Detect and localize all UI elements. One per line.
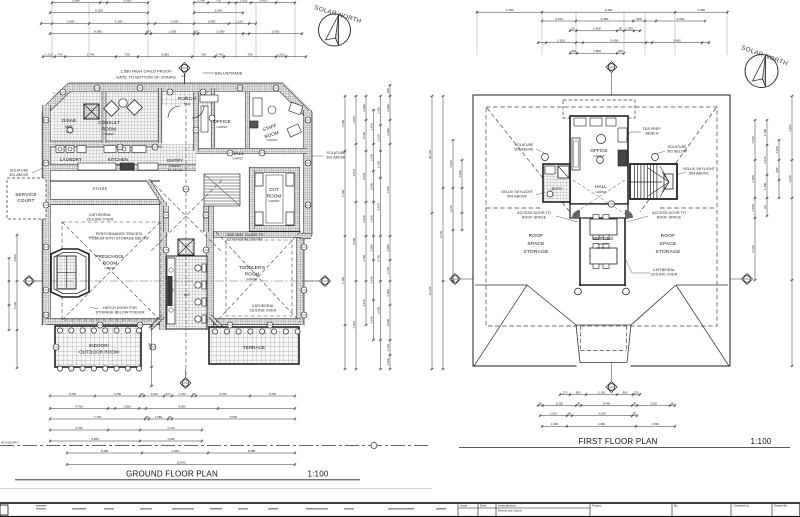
svg-text:3,440: 3,440 xyxy=(449,205,453,213)
svg-text:STORAGE: STORAGE xyxy=(655,249,680,255)
svg-text:3,750: 3,750 xyxy=(362,254,366,262)
svg-text:6,290: 6,290 xyxy=(95,9,103,13)
svg-text:2,100: 2,100 xyxy=(557,39,565,43)
svg-text:3,395: 3,395 xyxy=(788,124,792,132)
svg-text:BATH: BATH xyxy=(552,187,563,191)
svg-text:5,900: 5,900 xyxy=(178,404,186,408)
svg-text:3,198: 3,198 xyxy=(148,342,152,350)
svg-text:2,000: 2,000 xyxy=(370,244,374,252)
svg-text:1,890: 1,890 xyxy=(123,404,131,408)
svg-text:Checked at: Checked at xyxy=(734,504,749,508)
svg-text:TILE: TILE xyxy=(115,163,121,167)
svg-text:ONE WAY GLASS TO: ONE WAY GLASS TO xyxy=(227,233,264,237)
svg-text:ROOF SPACE: ROOF SPACE xyxy=(657,216,682,220)
svg-text:GATE TO BOTTOM OF STAIRS: GATE TO BOTTOM OF STAIRS xyxy=(116,75,176,80)
svg-text:2,400: 2,400 xyxy=(593,27,601,31)
svg-text:5,430: 5,430 xyxy=(611,39,619,43)
svg-text:MEETING: MEETING xyxy=(592,236,614,241)
svg-text:2,920: 2,920 xyxy=(386,318,390,326)
svg-text:900: 900 xyxy=(623,390,628,394)
svg-text:2,100: 2,100 xyxy=(598,390,606,394)
svg-text:457: 457 xyxy=(146,30,151,34)
svg-text:1:100: 1:100 xyxy=(307,470,328,479)
svg-text:750: 750 xyxy=(124,53,129,57)
svg-text:VELUX SKYLIGHT: VELUX SKYLIGHT xyxy=(501,190,534,194)
svg-text:STORE: STORE xyxy=(92,186,107,191)
svg-text:WC: WC xyxy=(184,293,190,297)
svg-text:1,180: 1,180 xyxy=(386,358,390,366)
svg-text:5,310: 5,310 xyxy=(751,245,755,253)
svg-text:3,960: 3,960 xyxy=(13,254,17,262)
svg-text:1,660: 1,660 xyxy=(155,415,163,419)
svg-text:2,840: 2,840 xyxy=(370,215,374,223)
svg-text:2,000: 2,000 xyxy=(386,128,390,136)
svg-text:504 ABOVE: 504 ABOVE xyxy=(507,195,528,199)
svg-text:BENCH: BENCH xyxy=(645,132,658,136)
svg-text:7,120: 7,120 xyxy=(341,189,345,197)
svg-text:3,530: 3,530 xyxy=(751,136,755,144)
svg-text:PRESCHOOL: PRESCHOOL xyxy=(95,254,125,259)
svg-text:900: 900 xyxy=(775,167,779,172)
svg-text:SOLATUBE: SOLATUBE xyxy=(10,169,29,173)
svg-text:2,000: 2,000 xyxy=(386,289,390,297)
svg-text:900: 900 xyxy=(386,88,390,93)
svg-text:CEILING OVER: CEILING OVER xyxy=(651,273,678,277)
svg-text:3,510: 3,510 xyxy=(650,401,658,405)
svg-text:SPACE: SPACE xyxy=(527,241,544,247)
svg-text:1,480: 1,480 xyxy=(751,204,755,212)
svg-text:By: By xyxy=(674,504,678,508)
svg-text:CARPET: CARPET xyxy=(232,157,244,161)
svg-text:3,750: 3,750 xyxy=(219,392,227,396)
svg-text:3,360: 3,360 xyxy=(449,160,453,168)
svg-text:CARPET: CARPET xyxy=(103,132,115,136)
svg-text:DISAB: DISAB xyxy=(62,118,76,123)
svg-text:ROOF: ROOF xyxy=(661,233,676,239)
svg-text:4,870: 4,870 xyxy=(362,172,366,180)
svg-text:501 ABOVE: 501 ABOVE xyxy=(515,148,535,152)
svg-text:4,140: 4,140 xyxy=(13,301,17,309)
svg-text:BALUSTRADE: BALUSTRADE xyxy=(215,71,243,76)
svg-text:7,450: 7,450 xyxy=(341,276,345,284)
svg-text:3,670: 3,670 xyxy=(362,299,366,307)
svg-text:2,800: 2,800 xyxy=(67,19,75,23)
svg-text:Revised plan layouts: Revised plan layouts xyxy=(498,509,523,513)
svg-text:4,180: 4,180 xyxy=(167,437,175,441)
svg-text:3,750: 3,750 xyxy=(269,392,277,396)
svg-text:RL 4,57.40: RL 4,57.40 xyxy=(168,168,182,172)
svg-text:2,840: 2,840 xyxy=(370,123,374,131)
svg-text:4,870: 4,870 xyxy=(377,203,381,211)
svg-text:CARPET: CARPET xyxy=(266,138,278,142)
svg-text:90: 90 xyxy=(633,412,637,416)
svg-text:1,510: 1,510 xyxy=(550,412,558,416)
svg-text:4,300: 4,300 xyxy=(115,19,123,23)
svg-text:CEILING OVER: CEILING OVER xyxy=(250,309,277,313)
svg-text:Project: Project xyxy=(592,504,602,508)
svg-text:3,750: 3,750 xyxy=(114,392,122,396)
svg-text:INDOOR/: INDOOR/ xyxy=(89,343,110,348)
svg-text:TERRACE: TERRACE xyxy=(243,345,265,350)
svg-text:90: 90 xyxy=(633,401,637,405)
svg-text:502 BELOW: 502 BELOW xyxy=(667,150,687,154)
svg-text:CARPET: CARPET xyxy=(216,125,228,129)
svg-text:504 ABOVE: 504 ABOVE xyxy=(689,172,710,176)
svg-text:STORAGE: STORAGE xyxy=(523,249,548,255)
svg-text:1,400: 1,400 xyxy=(775,146,779,154)
svg-text:COURT: COURT xyxy=(17,198,34,203)
svg-text:5,480: 5,480 xyxy=(248,449,256,453)
svg-text:CATHEDRAL: CATHEDRAL xyxy=(653,268,675,272)
svg-text:4,150: 4,150 xyxy=(506,8,514,12)
svg-text:1,480: 1,480 xyxy=(763,182,767,190)
svg-text:2,000: 2,000 xyxy=(386,104,390,112)
svg-text:6,600: 6,600 xyxy=(352,237,356,245)
svg-text:270: 270 xyxy=(563,390,568,394)
svg-text:TILE: TILE xyxy=(184,102,190,106)
svg-text:TEA PREP.: TEA PREP. xyxy=(642,127,661,131)
svg-text:ROOM: ROOM xyxy=(267,194,282,199)
svg-text:4,020: 4,020 xyxy=(352,116,356,124)
svg-text:2,000: 2,000 xyxy=(362,104,366,112)
svg-text:3,420: 3,420 xyxy=(260,0,268,3)
svg-text:710: 710 xyxy=(216,0,221,3)
svg-text:CATHEDRAL: CATHEDRAL xyxy=(89,213,111,217)
svg-text:4,180: 4,180 xyxy=(598,412,606,416)
svg-text:900: 900 xyxy=(576,390,581,394)
svg-text:1,380: 1,380 xyxy=(458,170,462,178)
svg-text:ACCESS DOOR TO: ACCESS DOOR TO xyxy=(517,211,551,215)
svg-text:3,340: 3,340 xyxy=(370,316,374,324)
svg-text:4,900: 4,900 xyxy=(377,306,381,314)
svg-text:4,790: 4,790 xyxy=(75,426,83,430)
svg-text:90: 90 xyxy=(619,27,623,31)
svg-text:ROOM: ROOM xyxy=(102,127,117,132)
svg-text:3,750: 3,750 xyxy=(377,254,381,262)
svg-text:4,590: 4,590 xyxy=(341,119,345,127)
svg-text:WC: WC xyxy=(65,125,73,130)
svg-text:SPACE: SPACE xyxy=(659,241,676,247)
svg-text:90: 90 xyxy=(763,205,767,209)
svg-text:5,080: 5,080 xyxy=(161,53,169,57)
svg-text:750: 750 xyxy=(247,53,252,57)
svg-text:2,590: 2,590 xyxy=(370,182,374,190)
svg-text:3,000: 3,000 xyxy=(215,9,223,13)
svg-text:5,440: 5,440 xyxy=(603,401,611,405)
svg-text:ENTRY: ENTRY xyxy=(167,158,183,163)
svg-text:2,160: 2,160 xyxy=(377,134,381,142)
svg-text:ROOF: ROOF xyxy=(529,233,544,239)
svg-text:KITCHEN: KITCHEN xyxy=(108,157,129,162)
svg-text:1,743: 1,743 xyxy=(178,392,186,396)
svg-text:13,170: 13,170 xyxy=(428,286,432,295)
svg-text:FIRST FLOOR PLAN: FIRST FLOOR PLAN xyxy=(578,437,657,446)
svg-text:ROOF SPACE: ROOF SPACE xyxy=(522,216,547,220)
svg-text:SERVICE: SERVICE xyxy=(15,192,36,197)
svg-text:2,465: 2,465 xyxy=(763,156,767,164)
svg-text:90: 90 xyxy=(168,415,172,419)
svg-text:Drawn By: Drawn By xyxy=(774,504,788,508)
svg-text:502 ABOVE: 502 ABOVE xyxy=(327,156,347,160)
svg-text:490: 490 xyxy=(571,49,576,53)
svg-text:490: 490 xyxy=(636,17,641,21)
svg-text:1,685: 1,685 xyxy=(169,30,177,34)
svg-text:2,700: 2,700 xyxy=(167,426,175,430)
svg-text:CARPET: CARPET xyxy=(104,266,116,270)
svg-text:5,480: 5,480 xyxy=(101,449,109,453)
svg-text:90: 90 xyxy=(577,401,581,405)
svg-text:8,460: 8,460 xyxy=(605,8,613,12)
svg-text:COT ROOM DOORS: COT ROOM DOORS xyxy=(227,238,263,242)
svg-text:CONSULT: CONSULT xyxy=(98,120,120,125)
svg-text:VELUX SKYLIGHT: VELUX SKYLIGHT xyxy=(683,167,716,171)
svg-text:2,420: 2,420 xyxy=(377,106,381,114)
svg-text:CARPET: CARPET xyxy=(268,199,280,203)
svg-text:Amendments: Amendments xyxy=(498,504,516,508)
svg-text:90: 90 xyxy=(568,412,572,416)
svg-text:CATHEDRAL: CATHEDRAL xyxy=(252,304,274,308)
svg-text:HALL: HALL xyxy=(232,151,245,156)
svg-text:RL 457.40: RL 457.40 xyxy=(597,246,610,250)
svg-text:2,000: 2,000 xyxy=(386,244,390,252)
svg-text:490: 490 xyxy=(618,49,623,53)
svg-text:ROOM: ROOM xyxy=(103,261,118,266)
svg-text:PERFORMANCE SPACES/: PERFORMANCE SPACES/ xyxy=(96,232,142,236)
svg-text:1,260: 1,260 xyxy=(386,343,390,351)
svg-text:457: 457 xyxy=(193,30,198,34)
svg-text:90: 90 xyxy=(671,401,675,405)
svg-text:ROOM: ROOM xyxy=(245,272,260,277)
svg-text:750: 750 xyxy=(57,53,62,57)
svg-text:2,740: 2,740 xyxy=(216,53,224,57)
svg-text:2,590: 2,590 xyxy=(362,131,366,139)
svg-text:5,090: 5,090 xyxy=(217,30,225,34)
svg-text:STORAGE BELOW PODIUM: STORAGE BELOW PODIUM xyxy=(96,311,145,315)
svg-text:CARPET: CARPET xyxy=(246,277,258,281)
svg-text:90: 90 xyxy=(192,392,196,396)
svg-text:SOLATUBE: SOLATUBE xyxy=(327,151,346,155)
svg-text:5,580: 5,580 xyxy=(91,437,99,441)
svg-text:3,500: 3,500 xyxy=(171,19,179,23)
svg-text:5,180: 5,180 xyxy=(601,17,609,21)
svg-text:2,630: 2,630 xyxy=(677,17,685,21)
svg-text:270: 270 xyxy=(634,390,639,394)
svg-text:5,000: 5,000 xyxy=(124,0,132,3)
svg-text:1,430: 1,430 xyxy=(788,175,792,183)
svg-text:1,800: 1,800 xyxy=(593,49,601,53)
svg-text:3,750: 3,750 xyxy=(69,392,77,396)
svg-text:15,540: 15,540 xyxy=(177,460,186,464)
svg-text:1,600: 1,600 xyxy=(551,422,559,426)
svg-text:3,400: 3,400 xyxy=(673,39,681,43)
svg-text:OFFICE: OFFICE xyxy=(213,119,230,124)
svg-text:COT: COT xyxy=(269,187,279,192)
svg-text:5,900: 5,900 xyxy=(230,415,238,419)
svg-text:90: 90 xyxy=(572,27,576,31)
svg-text:1,110: 1,110 xyxy=(235,19,243,23)
svg-text:LAUNDRY: LAUNDRY xyxy=(60,157,82,162)
svg-text:4,360: 4,360 xyxy=(598,422,606,426)
svg-text:1:100: 1:100 xyxy=(750,437,771,446)
svg-text:OUTDOOR ROOM: OUTDOOR ROOM xyxy=(79,350,119,355)
svg-text:HATCH DOOR FOR: HATCH DOOR FOR xyxy=(103,306,137,310)
svg-text:7,680: 7,680 xyxy=(386,186,390,194)
svg-text:501 ABOVE: 501 ABOVE xyxy=(10,173,30,177)
svg-text:HALL: HALL xyxy=(595,184,607,189)
svg-text:3,800: 3,800 xyxy=(208,19,216,23)
svg-text:1,750: 1,750 xyxy=(386,266,390,274)
svg-text:GROUND FLOOR PLAN: GROUND FLOOR PLAN xyxy=(126,470,218,479)
svg-text:1,013: 1,013 xyxy=(277,53,285,57)
svg-text:TODDLER'S: TODDLER'S xyxy=(239,265,265,270)
svg-text:PODIUM WITH STORAGE BELOW: PODIUM WITH STORAGE BELOW xyxy=(89,237,149,241)
svg-text:Date: Date xyxy=(480,504,487,508)
svg-text:ACCESS DOOR TO: ACCESS DOOR TO xyxy=(652,211,686,215)
svg-text:750: 750 xyxy=(201,53,206,57)
svg-text:CARPET: CARPET xyxy=(595,190,607,194)
svg-text:1,100: 1,100 xyxy=(763,128,767,136)
svg-text:10,370: 10,370 xyxy=(428,150,432,159)
svg-text:2,230: 2,230 xyxy=(439,230,443,238)
svg-text:BOUNDARY: BOUNDARY xyxy=(1,441,19,445)
svg-text:7,360: 7,360 xyxy=(352,321,356,329)
svg-text:7,793: 7,793 xyxy=(94,415,102,419)
svg-text:2,500: 2,500 xyxy=(652,422,660,426)
svg-text:90: 90 xyxy=(145,415,149,419)
svg-text:3,290: 3,290 xyxy=(697,8,705,12)
svg-text:TILE: TILE xyxy=(66,130,72,134)
svg-text:1,633: 1,633 xyxy=(150,392,158,396)
svg-text:4,870: 4,870 xyxy=(352,169,356,177)
svg-text:2,840: 2,840 xyxy=(362,215,366,223)
svg-text:2,740: 2,740 xyxy=(197,0,205,3)
svg-text:Issue: Issue xyxy=(460,504,468,508)
svg-text:4,180: 4,180 xyxy=(171,449,179,453)
svg-text:2,190: 2,190 xyxy=(555,17,563,21)
svg-text:6,090: 6,090 xyxy=(94,30,102,34)
svg-text:CEILING OVER: CEILING OVER xyxy=(87,218,114,222)
svg-text:3,340: 3,340 xyxy=(370,276,374,284)
svg-text:90: 90 xyxy=(140,392,144,396)
svg-text:CARPET: CARPET xyxy=(593,154,605,158)
svg-text:3,080: 3,080 xyxy=(72,0,80,3)
svg-text:OFFICE: OFFICE xyxy=(590,148,607,153)
svg-text:5,000: 5,000 xyxy=(272,30,280,34)
svg-text:SOLATUBE: SOLATUBE xyxy=(515,143,534,147)
svg-text:5,100: 5,100 xyxy=(556,401,564,405)
svg-text:2,260: 2,260 xyxy=(377,160,381,168)
svg-text:1,200: 1,200 xyxy=(625,27,633,31)
svg-text:90: 90 xyxy=(539,401,543,405)
svg-text:670: 670 xyxy=(166,392,171,396)
svg-text:2,260: 2,260 xyxy=(370,153,374,161)
svg-text:4,790: 4,790 xyxy=(75,404,83,408)
svg-text:2,740: 2,740 xyxy=(87,53,95,57)
svg-text:1,635: 1,635 xyxy=(240,0,248,3)
svg-text:SOLATUBE: SOLATUBE xyxy=(668,145,687,149)
svg-text:2,400: 2,400 xyxy=(751,175,755,183)
svg-text:1,560 HIGH CHILD PROOF: 1,560 HIGH CHILD PROOF xyxy=(120,69,172,74)
